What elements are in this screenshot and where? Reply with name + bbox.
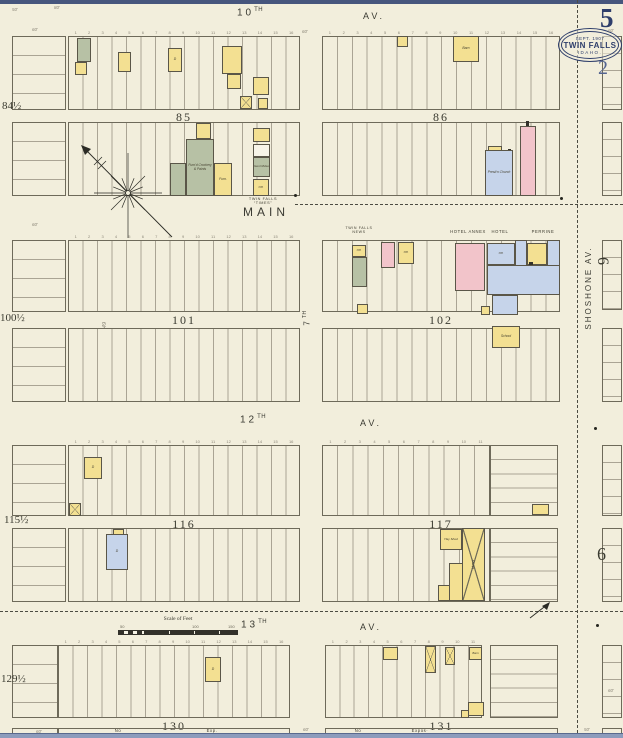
survey-marker — [596, 624, 599, 627]
survey-marker — [294, 194, 297, 197]
survey-markers-layer — [0, 0, 623, 738]
survey-marker — [560, 197, 563, 200]
scan-edge-bottom — [0, 733, 623, 738]
survey-marker — [594, 427, 597, 430]
sanborn-map-sheet: 10TH AV. MAIN 7TH 12TH AV. 13TH AV. SHOS… — [0, 0, 623, 738]
